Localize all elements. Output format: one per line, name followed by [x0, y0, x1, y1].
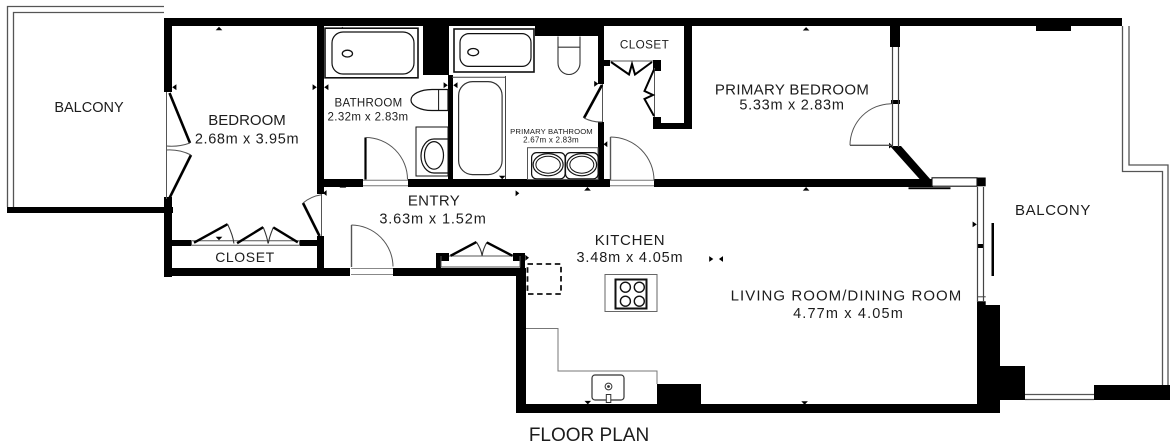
svg-text:LIVING ROOM/DINING ROOM: LIVING ROOM/DINING ROOM	[731, 288, 963, 305]
svg-text:CLOSET: CLOSET	[620, 39, 669, 52]
svg-text:ENTRY: ENTRY	[408, 193, 460, 210]
svg-text:CLOSET: CLOSET	[215, 249, 275, 265]
svg-text:2.67m x 2.83m: 2.67m x 2.83m	[523, 136, 579, 145]
svg-text:2.68m x 3.95m: 2.68m x 3.95m	[195, 132, 299, 148]
svg-text:2.32m x 2.83m: 2.32m x 2.83m	[327, 112, 408, 124]
svg-text:KITCHEN: KITCHEN	[595, 232, 666, 249]
svg-text:BEDROOM: BEDROOM	[208, 112, 286, 129]
svg-text:BALCONY: BALCONY	[54, 100, 124, 116]
svg-text:3.63m x 1.52m: 3.63m x 1.52m	[379, 212, 486, 228]
svg-text:PRIMARY BEDROOM: PRIMARY BEDROOM	[715, 82, 869, 99]
svg-text:BATHROOM: BATHROOM	[335, 98, 403, 110]
svg-text:3.48m x 4.05m: 3.48m x 4.05m	[577, 250, 684, 266]
svg-text:4.77m x 4.05m: 4.77m x 4.05m	[793, 306, 904, 322]
svg-text:FLOOR PLAN: FLOOR PLAN	[529, 425, 649, 446]
svg-text:5.33m x 2.83m: 5.33m x 2.83m	[739, 98, 844, 114]
svg-text:BALCONY: BALCONY	[1015, 202, 1091, 219]
